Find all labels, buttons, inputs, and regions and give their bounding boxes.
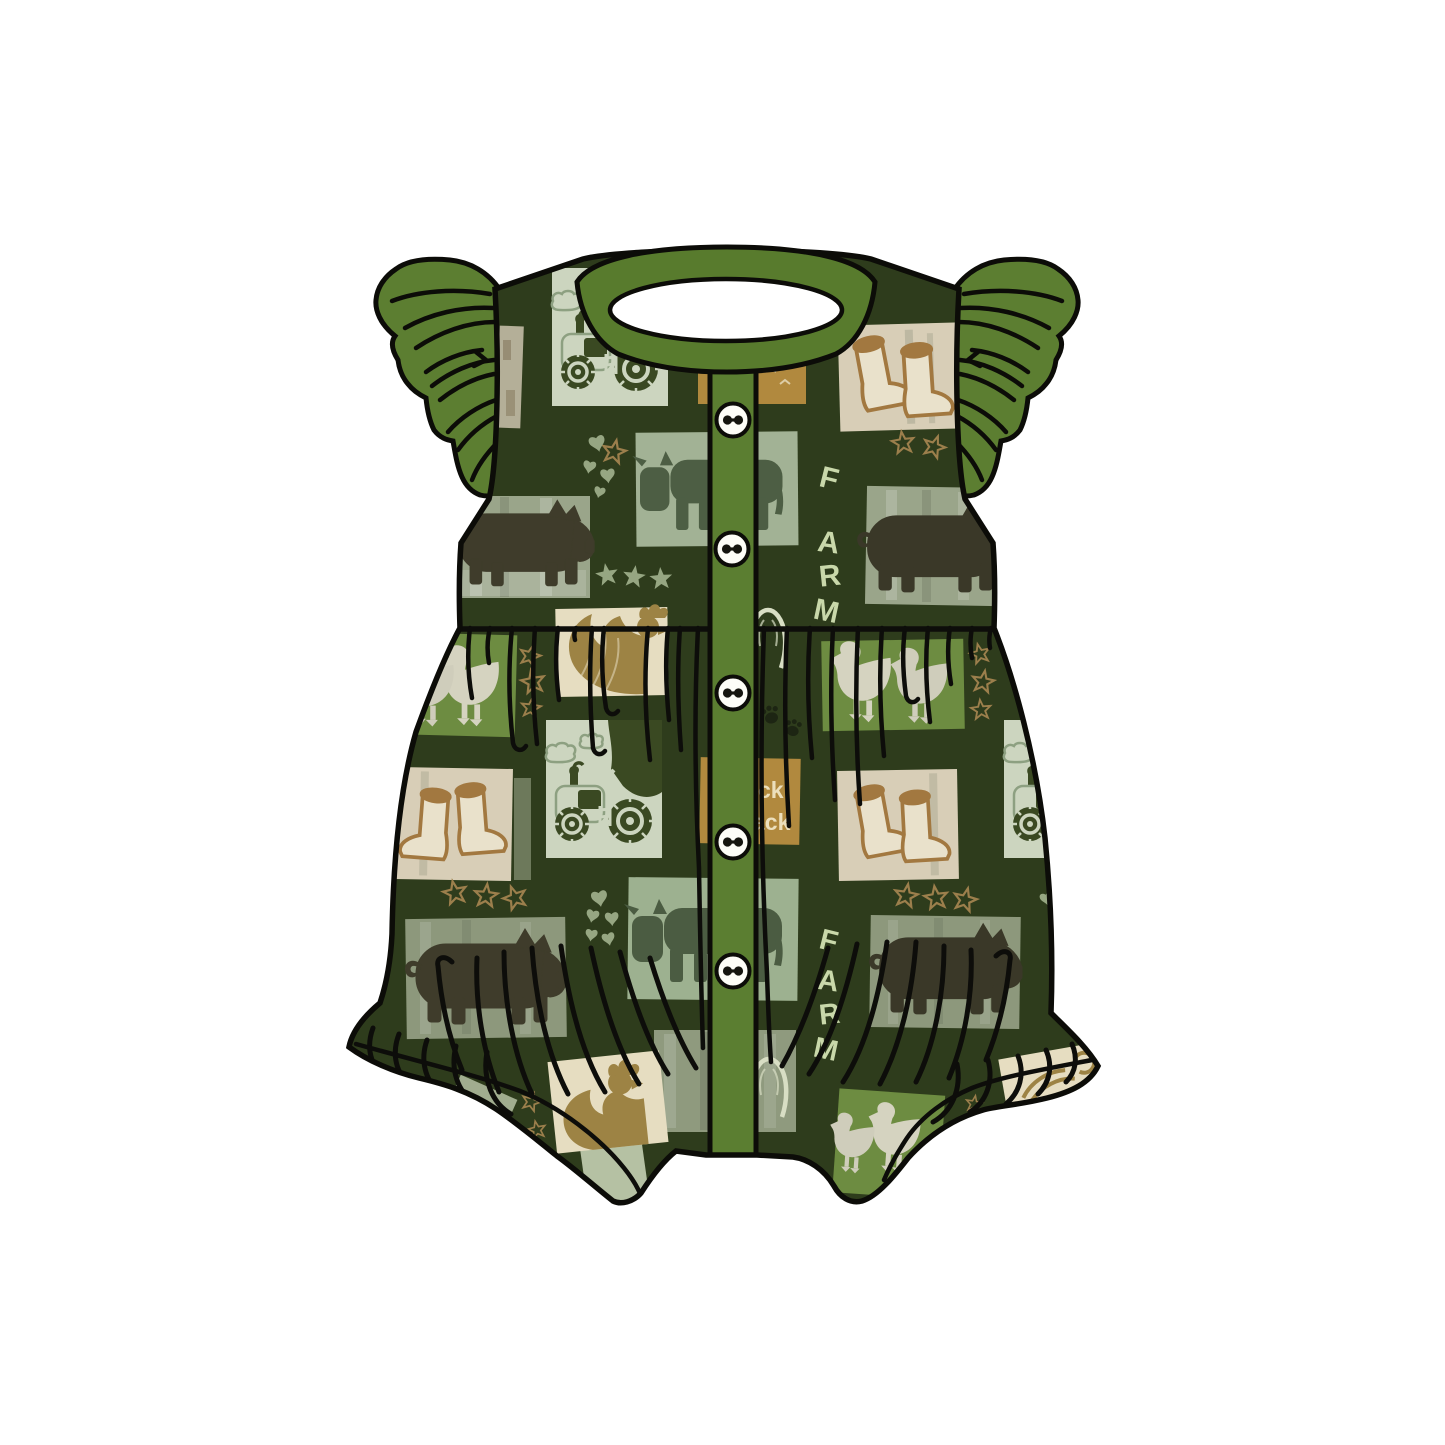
- svg-text:R: R: [817, 559, 842, 594]
- svg-text:A: A: [816, 525, 842, 561]
